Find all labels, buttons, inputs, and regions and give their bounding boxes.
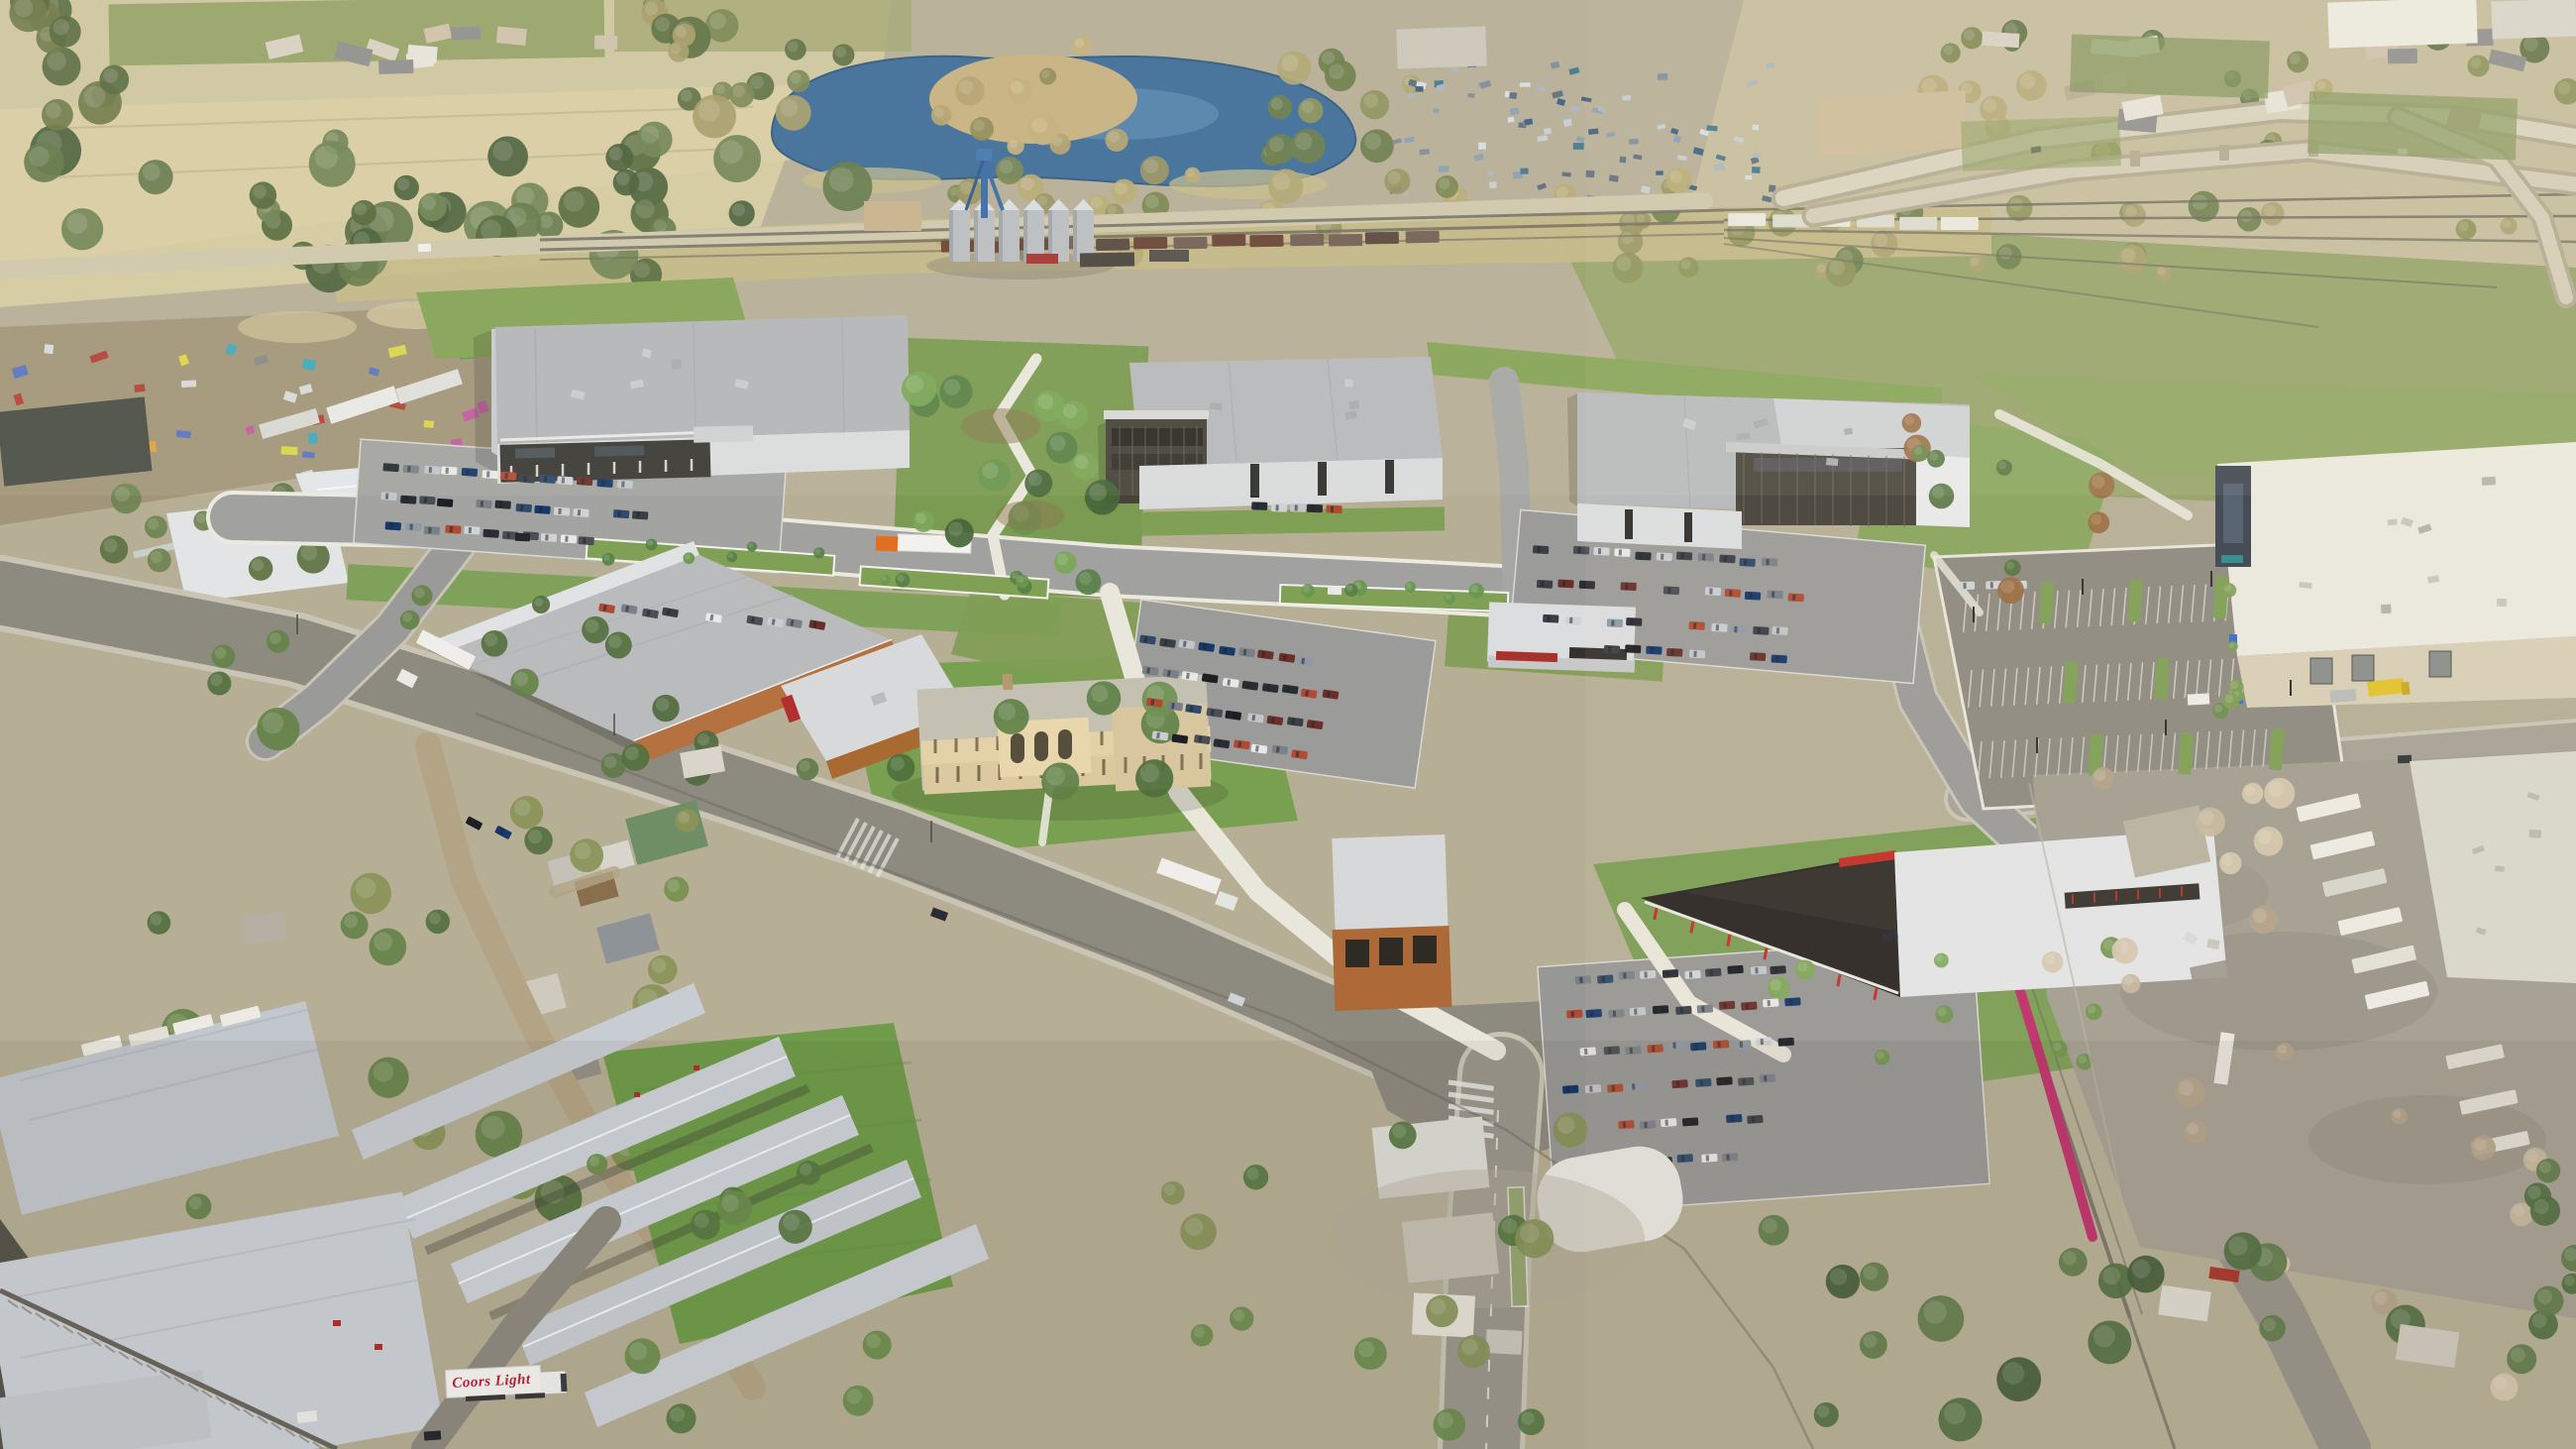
- ell: [996, 501, 1065, 530]
- rect: [1379, 938, 1403, 965]
- arch: [1034, 731, 1048, 761]
- truck-orange-cab: [876, 536, 899, 552]
- house: [242, 911, 286, 945]
- rect: [515, 533, 530, 542]
- arch: [1011, 733, 1024, 763]
- aerial-site-rendering: Coors Light: [0, 0, 2576, 1449]
- padA-roof: [1332, 835, 1448, 934]
- rect: [1413, 936, 1437, 963]
- rect: [1345, 940, 1369, 967]
- scene-canvas: [0, 0, 2576, 1449]
- arch: [1058, 729, 1072, 759]
- rect: [0, 1041, 2576, 1449]
- rect: [1328, 587, 1342, 595]
- historic-chimney: [1003, 674, 1014, 691]
